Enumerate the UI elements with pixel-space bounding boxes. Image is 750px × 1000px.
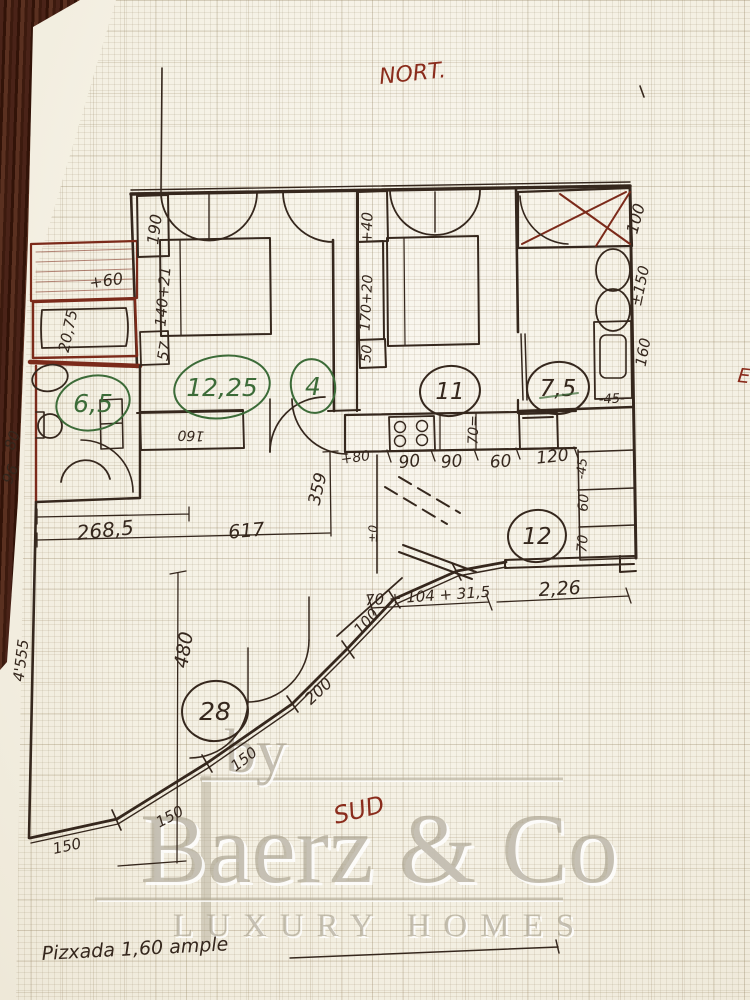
- terrace-block: [30, 241, 140, 366]
- fridge: [519, 413, 558, 449]
- area-bath-left: 6,5: [73, 389, 113, 418]
- dim-counter-depth: 70=: [465, 415, 482, 445]
- area-bedroom-right: 11: [435, 379, 464, 405]
- dim-curve-s4: 200: [301, 674, 336, 709]
- compass-east-label: E: [736, 363, 750, 388]
- area-kitchen: 12: [522, 524, 551, 550]
- dim-left-edge-c: 96: [0, 462, 22, 486]
- dim-bed-left: 140+21: [151, 266, 174, 328]
- area-bedroom-left: 12,25: [186, 373, 258, 402]
- dim-wardrobe-left: 190: [143, 213, 166, 246]
- stove: [389, 416, 435, 451]
- dim-counter-b: 90: [440, 451, 463, 472]
- dim-level-mark: ±0: [366, 524, 381, 543]
- dim-corridor-width: 268,5: [76, 515, 135, 545]
- door-arc: [81, 440, 133, 492]
- dim-counter-offset: +80: [340, 448, 372, 468]
- door-arc: [520, 196, 568, 244]
- floor-plan-drawing: by by Baerz & Co Baerz & Co LUXURY HOMES…: [0, 0, 750, 1000]
- hall-corridor: [137, 397, 360, 454]
- dim-nightstand-left: 57: [154, 340, 175, 362]
- stairs-dashed: [385, 477, 460, 524]
- dim-counter-c: 60: [489, 451, 512, 472]
- dim-window-width: 2,26: [538, 577, 581, 601]
- washbasin: [600, 335, 626, 378]
- dim-wardrobe-right-c: 50: [358, 344, 375, 363]
- dim-bath-wall-a: 100: [623, 201, 649, 235]
- dim-wardrobe-right-a: +40: [357, 212, 376, 244]
- bed: [160, 238, 271, 336]
- toilet: [38, 414, 62, 438]
- dim-counter-d: 120: [535, 445, 569, 468]
- watermark-tagline: LUXURY HOMES: [173, 908, 587, 944]
- area-hall: 4: [305, 372, 321, 401]
- footer-note: Pizxada 1,60 ample: [41, 933, 229, 965]
- dim-hall-cabinet: 160: [177, 427, 204, 444]
- bathroom-left: [29, 361, 140, 502]
- dim-shelf-c: 70: [574, 534, 591, 553]
- bidet: [596, 289, 630, 331]
- dim-bath-wall-c: 160: [632, 336, 655, 367]
- door-arc: [283, 192, 333, 242]
- dim-left-edge-b: 80: [1, 428, 24, 452]
- dim-counter-a: 90: [398, 451, 422, 473]
- dim-shelf-b: 60: [576, 493, 593, 512]
- dim-left-wall-total: 4'555: [10, 638, 33, 682]
- toilet: [596, 249, 630, 291]
- dim-shelf-a: -45: [574, 457, 591, 479]
- bed: [387, 236, 479, 346]
- stairs-stringer: [399, 545, 476, 579]
- dim-terrace-offset: +60: [88, 269, 124, 293]
- dim-plan-width: 617: [227, 518, 265, 543]
- area-living: 28: [199, 697, 231, 726]
- dim-bath-closet: -45-: [598, 391, 625, 407]
- dim-hall-depth: 359: [305, 471, 332, 507]
- door-arc: [248, 640, 309, 702]
- watermark: by by Baerz & Co Baerz & Co LUXURY HOMES…: [95, 718, 621, 946]
- bidet: [61, 460, 110, 482]
- dim-wardrobe-right-b: 170+20: [358, 274, 377, 331]
- compass-north-label: NORT.: [378, 58, 447, 90]
- dim-curve-s5: 100: [350, 605, 383, 638]
- dim-living-height: 480: [170, 630, 198, 670]
